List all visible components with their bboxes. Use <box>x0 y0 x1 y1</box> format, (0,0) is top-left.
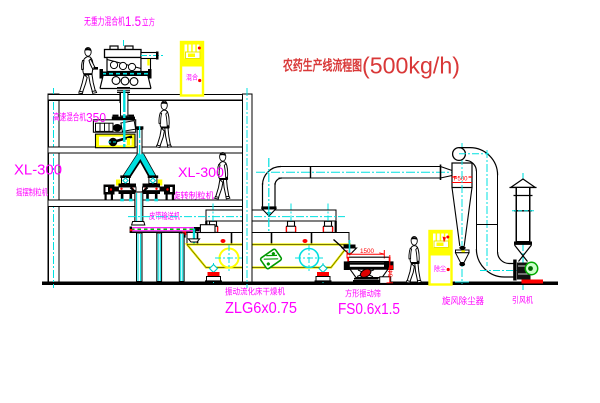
svg-text:1.5: 1.5 <box>125 13 141 29</box>
svg-text:无重力混合机: 无重力混合机 <box>84 15 125 28</box>
svg-text:摇摆制粒机: 摇摆制粒机 <box>16 187 48 198</box>
svg-text:振动流化床干燥机: 振动流化床干燥机 <box>225 287 285 297</box>
svg-text:ZLG6x0.75: ZLG6x0.75 <box>225 300 297 317</box>
svg-text:(500kg/h): (500kg/h) <box>362 53 460 79</box>
svg-text:皮带输送机: 皮带输送机 <box>149 211 180 221</box>
svg-text:旋转制粒机: 旋转制粒机 <box>172 191 214 201</box>
svg-text:350: 350 <box>86 110 106 125</box>
svg-text:P500: P500 <box>454 176 468 183</box>
svg-text:农药生产线流程图: 农药生产线流程图 <box>282 58 362 74</box>
svg-text:立方: 立方 <box>142 17 155 29</box>
svg-text:混合: 混合 <box>186 73 198 82</box>
svg-text:旋风除尘器: 旋风除尘器 <box>442 295 484 306</box>
svg-text:引风机: 引风机 <box>512 295 533 305</box>
svg-text:XL-300: XL-300 <box>178 164 224 180</box>
svg-text:XL-300: XL-300 <box>14 163 62 179</box>
svg-text:1500: 1500 <box>360 248 374 255</box>
svg-text:FS0.6x1.5: FS0.6x1.5 <box>338 301 400 318</box>
svg-text:除尘: 除尘 <box>434 264 446 273</box>
svg-text:方形振动筛: 方形振动筛 <box>345 289 381 299</box>
svg-text:高速混合机: 高速混合机 <box>53 112 86 124</box>
svg-text:545: 545 <box>389 266 395 277</box>
